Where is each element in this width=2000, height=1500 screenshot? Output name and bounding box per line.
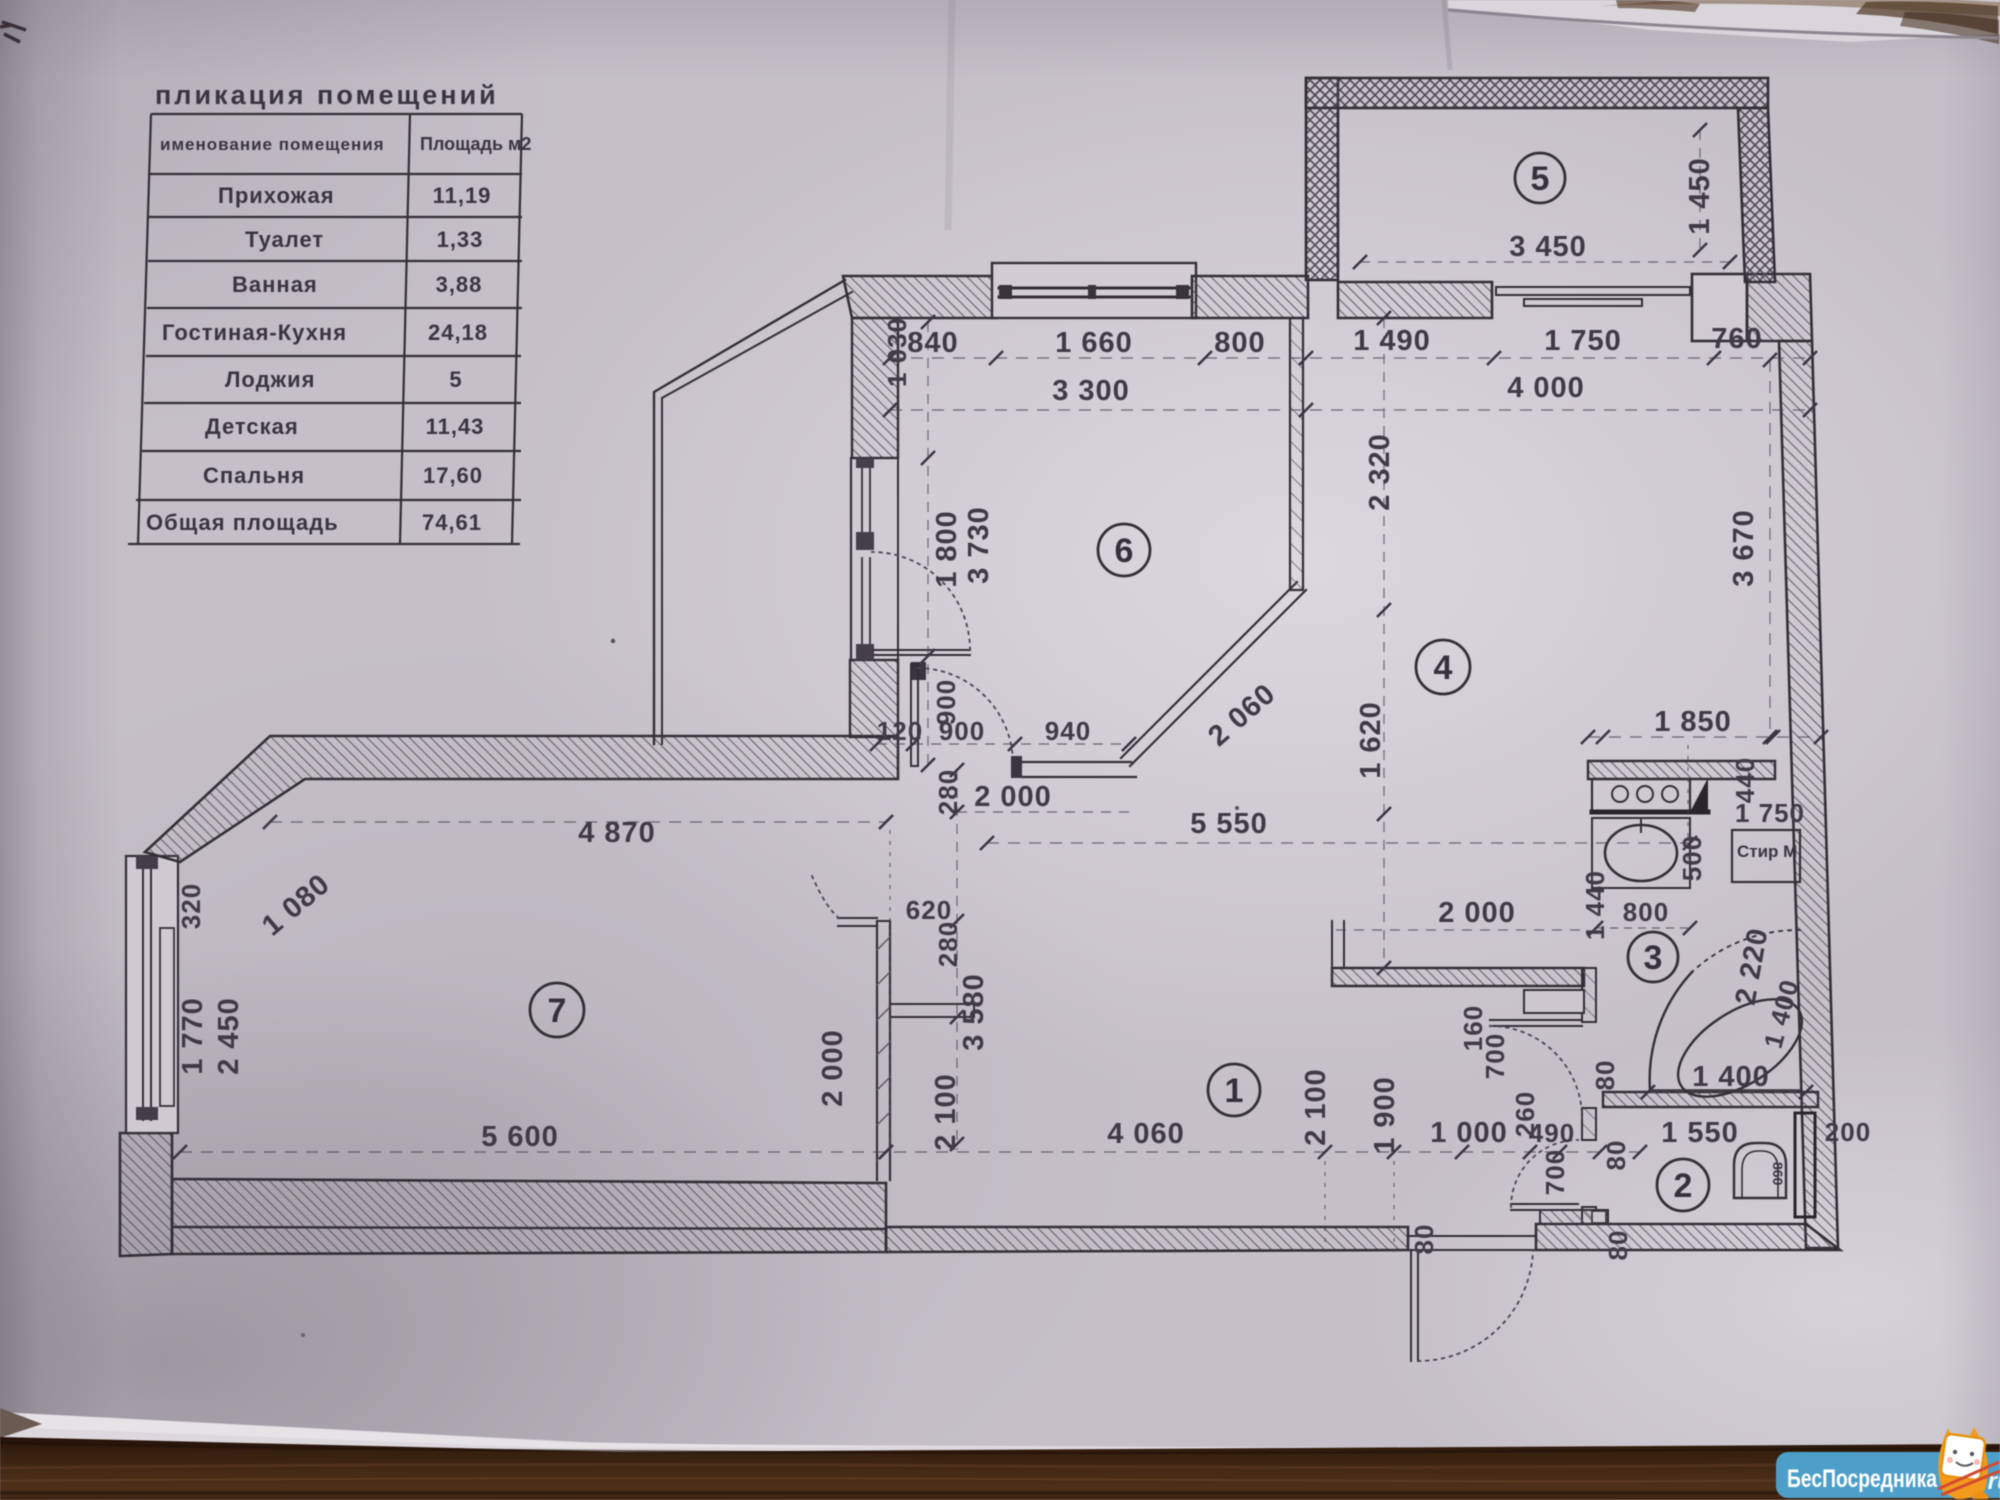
- svg-text:6: 6: [1115, 532, 1134, 570]
- svg-text:4 000: 4 000: [1507, 372, 1585, 404]
- svg-text:490: 490: [1529, 1118, 1575, 1148]
- svg-text:1,33: 1,33: [437, 227, 484, 252]
- svg-text:2 220: 2 220: [1730, 925, 1775, 1007]
- svg-text:Гостиная-Кухня: Гостиная-Кухня: [162, 320, 347, 345]
- svg-text:80: 80: [1601, 1140, 1631, 1171]
- svg-text:120: 120: [877, 716, 923, 746]
- svg-text:1 400: 1 400: [1692, 1061, 1770, 1093]
- svg-text:4 870: 4 870: [578, 817, 656, 849]
- svg-text:5: 5: [449, 367, 462, 392]
- svg-text:500: 500: [1677, 835, 1707, 881]
- svg-text:900: 900: [939, 716, 985, 746]
- svg-text:Спальня: Спальня: [203, 463, 305, 488]
- svg-text:80: 80: [1603, 1230, 1633, 1261]
- svg-text:17,60: 17,60: [423, 463, 483, 488]
- svg-text:1 550: 1 550: [1661, 1117, 1739, 1149]
- svg-text:3,88: 3,88: [436, 272, 483, 297]
- svg-text:1 000: 1 000: [1430, 1117, 1508, 1149]
- svg-text:800: 800: [1623, 897, 1669, 927]
- svg-text:Детская: Детская: [205, 414, 299, 439]
- svg-text:620: 620: [906, 895, 952, 925]
- svg-text:320: 320: [176, 883, 206, 929]
- svg-text:74,61: 74,61: [422, 510, 482, 535]
- svg-text:2 450: 2 450: [213, 997, 245, 1075]
- svg-text:именование помещения: именование помещения: [160, 135, 385, 154]
- svg-text:3 450: 3 450: [1509, 231, 1587, 263]
- svg-text:Площадь м2: Площадь м2: [420, 134, 531, 154]
- svg-text:Общая площадь: Общая площадь: [146, 510, 339, 535]
- svg-text:11,43: 11,43: [426, 414, 485, 439]
- svg-text:80: 80: [1409, 1224, 1439, 1255]
- svg-text:2 320: 2 320: [1364, 433, 1396, 511]
- svg-text:440: 440: [1730, 757, 1760, 803]
- svg-text:2 000: 2 000: [817, 1029, 849, 1107]
- svg-text:1 750: 1 750: [1544, 325, 1622, 357]
- svg-text:1 660: 1 660: [1055, 327, 1133, 359]
- svg-text:3 730: 3 730: [963, 506, 995, 584]
- svg-text:Стир М: Стир М: [1737, 842, 1797, 861]
- svg-text:БесПосредника: БесПосредника: [1787, 1465, 1938, 1493]
- svg-text:Туалет: Туалет: [245, 227, 324, 252]
- svg-text:4: 4: [1434, 649, 1453, 687]
- svg-text:пликация помещений: пликация помещений: [155, 80, 499, 110]
- svg-text:24,18: 24,18: [428, 320, 488, 345]
- svg-text:1: 1: [1225, 1072, 1244, 1110]
- svg-text:Лоджия: Лоджия: [225, 367, 316, 392]
- svg-text:700: 700: [1480, 1033, 1510, 1079]
- svg-text:3 300: 3 300: [1052, 375, 1130, 407]
- svg-text:5 550: 5 550: [1190, 808, 1268, 840]
- svg-text:80: 80: [1590, 1060, 1620, 1091]
- svg-text:700: 700: [1540, 1149, 1570, 1195]
- svg-text:800: 800: [1214, 327, 1265, 359]
- svg-text:1 490: 1 490: [1353, 325, 1431, 357]
- svg-text:200: 200: [1825, 1117, 1871, 1147]
- svg-text:1 850: 1 850: [1654, 706, 1732, 738]
- svg-text:Прихожая: Прихожая: [218, 183, 335, 208]
- svg-text:1 770: 1 770: [177, 997, 209, 1075]
- svg-text:2 000: 2 000: [1438, 897, 1516, 929]
- svg-text:11,19: 11,19: [433, 183, 492, 208]
- svg-text:840: 840: [907, 327, 958, 359]
- svg-text:940: 940: [1045, 716, 1091, 746]
- svg-text:1 030: 1 030: [882, 317, 912, 387]
- svg-text:2 100: 2 100: [930, 1073, 962, 1151]
- svg-text:1 450: 1 450: [1684, 157, 1716, 235]
- svg-text:2: 2: [1674, 1167, 1693, 1205]
- svg-text:3: 3: [1644, 939, 1663, 977]
- svg-text:280: 280: [933, 921, 963, 967]
- svg-text:3 580: 3 580: [958, 973, 990, 1051]
- svg-text:280: 280: [933, 769, 963, 815]
- svg-text:760: 760: [1711, 323, 1762, 355]
- svg-text:2 060: 2 060: [1202, 678, 1282, 753]
- svg-text:1 900: 1 900: [1369, 1076, 1401, 1154]
- svg-text:1 750: 1 750: [1735, 798, 1805, 828]
- svg-text:1 080: 1 080: [256, 868, 336, 942]
- svg-text:4 060: 4 060: [1107, 1118, 1185, 1150]
- svg-text:1 800: 1 800: [931, 510, 963, 588]
- svg-text:2 100: 2 100: [1300, 1068, 1332, 1146]
- svg-text:1 440: 1 440: [1580, 870, 1610, 940]
- svg-text:3 670: 3 670: [1728, 509, 1760, 587]
- svg-text:7: 7: [548, 992, 567, 1030]
- svg-text:2 000: 2 000: [974, 781, 1052, 813]
- svg-text:Ванная: Ванная: [232, 272, 318, 297]
- svg-text:860: 860: [1770, 1162, 1786, 1186]
- svg-text:5 600: 5 600: [481, 1121, 559, 1153]
- svg-text:1 620: 1 620: [1355, 701, 1387, 779]
- svg-text:5: 5: [1531, 160, 1550, 198]
